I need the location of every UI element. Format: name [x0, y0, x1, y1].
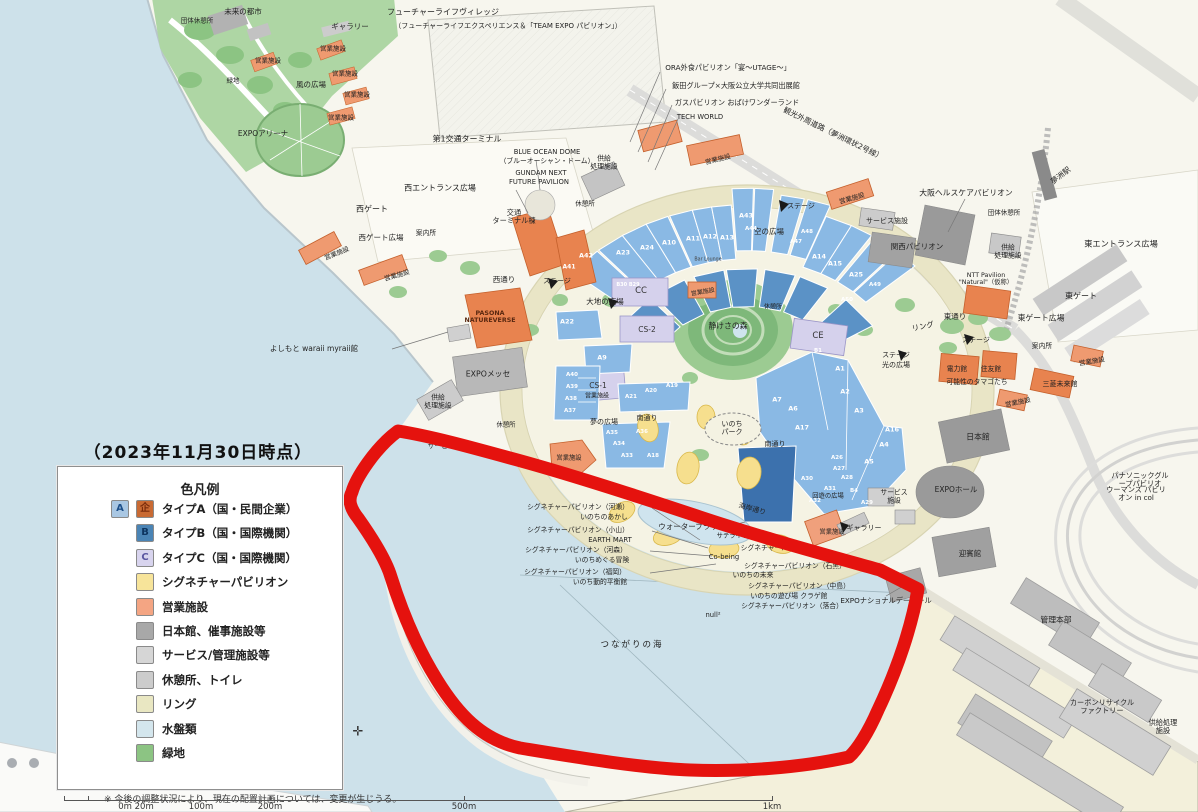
legend-item-label: サービス/管理施設等 — [162, 647, 270, 663]
legend-swatch — [136, 646, 154, 664]
legend-swatch — [136, 695, 154, 713]
scale-label: 1km — [763, 802, 782, 812]
expo-site-map-page: 未来の都市団体休憩所ギャラリーフューチャーライフヴィレッジ（フューチャーライフエ… — [0, 0, 1198, 812]
blue-ocean-dome — [525, 190, 555, 220]
legend-item-label: タイプC（国・国際機関） — [162, 550, 297, 566]
legend-item-label: 休憩所、トイレ — [162, 672, 243, 688]
legend-swatch: B — [136, 524, 154, 542]
legend-swatch — [136, 671, 154, 689]
ntt-pavilion — [963, 285, 1010, 319]
legend-item: 水盤類 — [58, 719, 342, 739]
legend-box: 色凡例 A企タイプA（国・民間企業）BタイプB（国・国際機関）CタイプC（国・国… — [57, 466, 343, 790]
legend-item: A企タイプA（国・民間企業） — [58, 499, 342, 519]
legend-item: 休憩所、トイレ — [58, 670, 342, 690]
inochi-park — [705, 413, 761, 445]
scale-label: 200m — [258, 802, 283, 812]
scale-tick — [772, 796, 773, 801]
legend-item-label: 緑地 — [162, 745, 185, 761]
legend-swatch — [136, 720, 154, 738]
scale-tick — [201, 796, 202, 801]
scale-tick — [270, 796, 271, 801]
legend-header: 色凡例 — [58, 479, 342, 498]
scale-tick — [88, 796, 89, 801]
scale-tick — [64, 796, 65, 801]
legend-item-label: リング — [162, 696, 197, 712]
legend-swatch: A — [111, 500, 129, 518]
legend-item: BタイプB（国・国際機関） — [58, 523, 342, 543]
sumitomo-pavilion — [981, 351, 1017, 380]
page-dot-1[interactable] — [7, 758, 17, 768]
scale-label: 100m — [189, 802, 214, 812]
legend-item-label: タイプB（国・国際機関） — [162, 525, 297, 541]
scale-tick — [464, 796, 465, 801]
legend-item: 緑地 — [58, 743, 342, 763]
legend-item-label: 水盤類 — [162, 721, 197, 737]
legend-swatch — [136, 573, 154, 591]
page-dot-2[interactable] — [29, 758, 39, 768]
legend-item: 日本館、催事施設等 — [58, 621, 342, 641]
legend-item: シグネチャーパビリオン — [58, 572, 342, 592]
scale-line — [64, 800, 772, 801]
legend-swatch: C — [136, 549, 154, 567]
scale-label: 0m 20m — [118, 802, 154, 812]
legend-item-label: 日本館、催事施設等 — [162, 623, 266, 639]
legend-title: （2023年11月30日時点） — [52, 438, 344, 463]
future-life-village — [428, 6, 666, 138]
legend-item-label: 営業施設 — [162, 599, 208, 615]
expo-hall — [916, 466, 984, 518]
electric-power-pavilion — [939, 353, 979, 384]
osaka-healthcare-pavilion — [915, 205, 975, 265]
scale-bar: 0m 20m100m200m500m1km — [0, 796, 1198, 812]
pasona-pavilion — [465, 288, 532, 348]
legend-item-label: タイプA（国・民間企業） — [162, 501, 297, 517]
legend-swatch — [136, 622, 154, 640]
legend-item: CタイプC（国・国際機関） — [58, 548, 342, 568]
legend-item: 営業施設 — [58, 597, 342, 617]
legend-swatch — [136, 598, 154, 616]
legend-swatch — [136, 744, 154, 762]
legend-swatch: 企 — [136, 500, 154, 518]
legend-item-label: シグネチャーパビリオン — [162, 574, 288, 590]
legend-item: サービス/管理施設等 — [58, 645, 342, 665]
legend-item: リング — [58, 694, 342, 714]
scale-label: 500m — [452, 802, 477, 812]
kansai-pavilion — [868, 232, 916, 268]
